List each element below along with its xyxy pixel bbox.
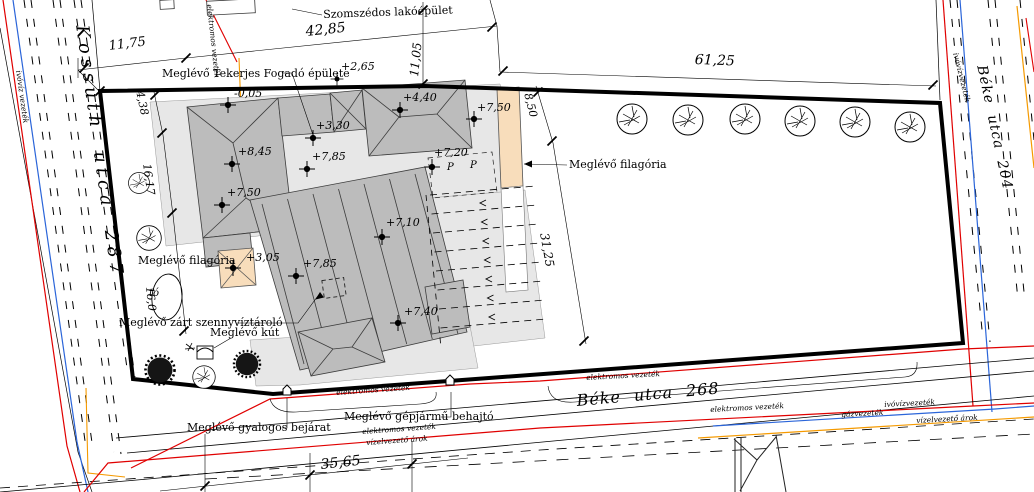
elevation-value: +7,50: [227, 187, 261, 198]
parking-letter-1: P: [447, 163, 454, 173]
inn-building-label: Meglévő Tekerjes Fogadó épülete: [162, 68, 350, 79]
vehicle-entrance-label: Meglévő gépjármű behajtó: [344, 411, 494, 422]
elevation-value: +7,85: [303, 258, 337, 269]
elevation-value: +7,20: [434, 147, 468, 158]
elevation-value: +4,40: [403, 92, 437, 103]
pedestrian-gate-icon: [283, 385, 291, 395]
dimension-value: 61,25: [695, 53, 736, 68]
parking-letter-2: P: [470, 161, 477, 171]
elevation-value: +7,10: [386, 217, 420, 228]
pergola-garden-label: Meglévő filagória: [138, 255, 236, 266]
elevation-value: +7,40: [404, 306, 438, 317]
site-plan-canvas: Kossuth utca 287 Béke utca 204 Béke utca…: [0, 0, 1034, 492]
elevation-value: -0,05: [234, 88, 262, 99]
pedestrian-entrance-label: Meglévő gyalogos bejárat: [187, 422, 331, 433]
dimension-value: 35,65: [320, 454, 361, 472]
elevation-value: +7,50: [477, 102, 511, 113]
well-structure: [185, 343, 213, 359]
site-plan-drawing: [0, 0, 1034, 492]
elevation-value: +8,45: [238, 146, 272, 157]
dimension-value: 16,0: [144, 286, 158, 312]
vehicle-gate-icon: [446, 375, 454, 385]
utility-label-gas: gázvezeték: [841, 409, 884, 419]
elevation-value: +7,85: [312, 151, 346, 162]
well-label: Meglévő kút: [210, 327, 279, 338]
dimension-value: 11,05: [408, 42, 424, 77]
elevation-value: +3,30: [316, 120, 350, 131]
dimension-value: 42,85: [305, 21, 346, 39]
elevation-value: +2,65: [341, 61, 375, 72]
elevation-value: +3,05: [246, 252, 280, 263]
pergola-main-label: Meglévő filagória: [569, 159, 667, 170]
